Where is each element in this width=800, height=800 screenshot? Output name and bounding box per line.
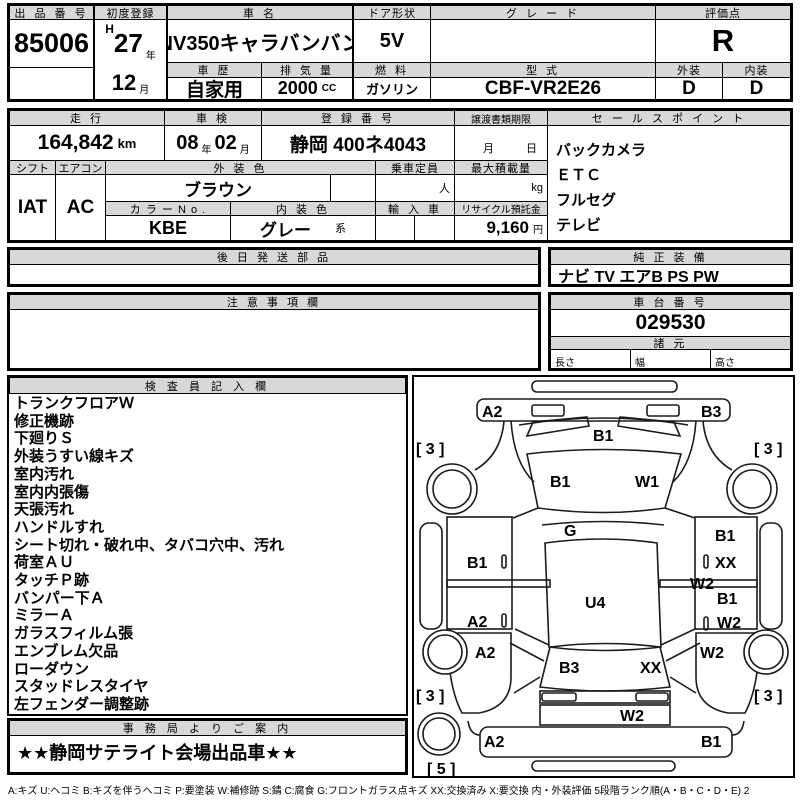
inspector-item: エンブレム欠品 xyxy=(14,643,406,661)
first-reg-year: H 27 年 xyxy=(95,20,166,66)
left-door-divider xyxy=(447,580,550,587)
later-parts-header: 後 日 発 送 部 品 xyxy=(9,249,539,265)
int-color-value: グレー 系 xyxy=(230,215,376,241)
import-value-2 xyxy=(414,215,455,241)
auction-no-value: 85006 xyxy=(9,19,94,68)
sales-points-header: セ ー ル ス ポ イ ン ト xyxy=(547,110,791,126)
shift-value: IAT xyxy=(9,174,56,241)
handle-right-rear xyxy=(704,617,708,630)
oem-header: 純 正 装 備 xyxy=(550,249,791,265)
later-parts-value xyxy=(9,264,539,285)
sales-point-item: テレビ xyxy=(556,213,790,238)
office-block: 事 務 局 よ り ご 案 内 ★★静岡サテライト会場出品車★★ xyxy=(7,718,408,775)
handle-left-rear xyxy=(502,614,506,627)
sales-points-list: バックカメラ ＥＴＣ フルセグ テレビ xyxy=(547,125,791,241)
recycle-unit: 円 xyxy=(533,221,543,236)
footer-legend: A:キズ U:ヘコミ B:キズを伴うヘコミ P:要塗装 W:補修跡 S:錆 C:… xyxy=(8,782,796,798)
left-door-panel xyxy=(447,517,512,629)
inspector-item: 修正機跡 xyxy=(14,413,406,431)
marker-left-rear-door: A2 xyxy=(467,614,488,631)
handle-right-front xyxy=(704,555,708,568)
pillar-right-1 xyxy=(661,629,695,645)
hood-seam-left xyxy=(527,417,589,436)
first-reg-header: 初度登録 xyxy=(94,5,167,20)
marker-roof: U4 xyxy=(585,595,606,612)
quarter-hatch-left xyxy=(514,677,540,693)
marker-windshield-right: W1 xyxy=(635,474,659,491)
condition-block: 走 行 164,842 km 車 検 08 年 02 月 登 録 番 号 静岡 … xyxy=(7,108,793,243)
marker-rear-bumper-right: B1 xyxy=(701,734,722,751)
oem-block: 純 正 装 備 ナビ TV エアB PS PW xyxy=(548,247,793,287)
marker-front-bumper-left: A2 xyxy=(482,404,503,421)
inspector-item: 左フェンダー調整跡 xyxy=(14,696,406,714)
pillar-left-2 xyxy=(510,643,544,661)
quarter-hatch-right xyxy=(670,677,696,693)
year-unit: 年 xyxy=(146,47,156,62)
marker-tire-front-right: [ 3 ] xyxy=(754,441,782,458)
import-header: 輸 入 車 xyxy=(375,201,455,216)
color-no-value: KBE xyxy=(105,215,231,241)
door-header: ドア形状 xyxy=(353,5,431,20)
handle-left-front xyxy=(502,555,506,568)
sales-point-item: ＥＴＣ xyxy=(556,163,790,188)
door-value: 5V xyxy=(353,19,431,63)
score-header: 評価点 xyxy=(655,5,791,20)
spec-width-cell: 幅 xyxy=(630,349,711,369)
oem-value: ナビ TV エアB PS PW xyxy=(550,264,791,285)
ext-color-header: 外 装 色 xyxy=(105,160,376,175)
capacity-value: 人 xyxy=(375,174,455,202)
a-pillar-left xyxy=(513,508,538,518)
capacity-header: 乗車定員 xyxy=(375,160,455,175)
inspector-list: トランクフロアＷ 修正機跡 下廻りＳ 外装うすい線キズ 室内汚れ 室内内張傷 天… xyxy=(9,393,406,714)
marker-right-front-door-1: B1 xyxy=(715,528,736,545)
inspector-item: ローダウン xyxy=(14,661,406,679)
recycle-value: 9,160 円 xyxy=(454,215,548,241)
marker-right-rear-door-2: W2 xyxy=(717,615,741,632)
aircon-header: エアコン xyxy=(55,160,106,175)
grade-header: グ レ ー ド xyxy=(430,5,656,20)
ext-grade-value: D xyxy=(655,77,723,100)
inspector-item: ガラスフィルム張 xyxy=(14,625,406,643)
fuel-header: 燃 料 xyxy=(353,62,431,78)
int-color-suffix: 系 xyxy=(335,220,346,236)
bumper-detail-left xyxy=(532,405,564,416)
int-grade-header: 内装 xyxy=(722,62,791,78)
marker-front-bumper-right: B3 xyxy=(701,404,722,421)
auction-no-header: 出 品 番 号 xyxy=(9,5,94,20)
sales-point-item: フルセグ xyxy=(556,188,790,213)
inspector-item: ハンドルすれ xyxy=(14,519,406,537)
wheel-rear-left-inner xyxy=(428,635,462,669)
marker-left-front-door: B1 xyxy=(467,555,488,572)
int-color-name: グレー xyxy=(260,216,311,241)
mileage-value: 164,842 km xyxy=(9,125,165,161)
shaken-header: 車 検 xyxy=(164,110,262,126)
inspector-item: 室内内張傷 xyxy=(14,484,406,502)
spare-tire-inner xyxy=(423,718,455,750)
inspector-header: 検 査 員 記 入 欄 xyxy=(9,377,406,394)
marker-rear-window-left: B3 xyxy=(559,660,580,677)
aircon-value: AC xyxy=(55,174,106,241)
marker-right-mid: W2 xyxy=(690,576,714,593)
inspector-item: 外装うすい線キズ xyxy=(14,448,406,466)
right-rail xyxy=(760,523,782,629)
car-name-value: NV350キャラバンバン xyxy=(167,19,353,63)
int-color-header: 内 装 色 xyxy=(230,201,376,216)
color-no-header: カ ラ ー N o . xyxy=(105,201,231,216)
marker-hood: B1 xyxy=(593,428,614,445)
inspector-item: 下廻りＳ xyxy=(14,430,406,448)
wheel-front-right-inner xyxy=(733,470,771,508)
hood-seam-right xyxy=(618,417,680,436)
displacement-header: 排 気 量 xyxy=(261,62,353,78)
shaken-year-unit: 年 xyxy=(202,141,212,156)
ext-grade-header: 外装 xyxy=(655,62,723,78)
grade-value xyxy=(430,19,656,63)
inspector-item: トランクフロアＷ xyxy=(14,395,406,413)
ext-color-suffix-cell xyxy=(330,174,376,202)
km-value: 164,842 xyxy=(38,131,114,155)
cowl-line xyxy=(542,522,664,526)
fuel-value: ガソリン xyxy=(353,77,431,100)
sales-point-item: バックカメラ xyxy=(556,138,790,163)
marker-tire-rear-left: [ 3 ] xyxy=(416,688,444,705)
wheel-rear-right-inner xyxy=(749,635,783,669)
rear-bumper xyxy=(480,727,732,757)
import-value xyxy=(375,215,415,241)
rear-lip xyxy=(532,761,675,771)
int-grade-value: D xyxy=(722,77,791,100)
recycle-header: リサイクル預託金 xyxy=(454,201,548,216)
front-fender-right xyxy=(703,421,732,470)
spec-height-cell: 高さ xyxy=(710,349,791,369)
shaken-year: 08 xyxy=(176,132,198,155)
marker-right-front-door-2: XX xyxy=(715,555,737,572)
pillar-right-2 xyxy=(666,643,700,661)
notes-value xyxy=(9,309,539,369)
notes-header: 注 意 事 項 欄 xyxy=(9,294,539,310)
marker-tire-front-left: [ 3 ] xyxy=(416,441,444,458)
inspector-block: 検 査 員 記 入 欄 トランクフロアＷ 修正機跡 下廻りＳ 外装うすい線キズ … xyxy=(7,375,408,716)
history-header: 車 歴 xyxy=(167,62,262,78)
cc-value: 2000 xyxy=(278,78,318,99)
auction-sheet: { "sheet": { "auction_no": {"label":"出 品… xyxy=(0,0,800,800)
inspector-item: 天張汚れ xyxy=(14,501,406,519)
rear-panel xyxy=(540,705,670,725)
tail-light-left xyxy=(542,693,576,701)
marker-right-quarter: W2 xyxy=(700,645,724,662)
inspector-item: 荷室ＡＵ xyxy=(14,554,406,572)
later-parts-block: 後 日 発 送 部 品 xyxy=(7,247,541,287)
displacement-value: 2000 CC xyxy=(261,77,353,100)
km-unit: km xyxy=(118,136,137,151)
shaken-value: 08 年 02 月 xyxy=(164,125,262,161)
identity-block: 出 品 番 号 85006 初度登録 H 27 年 12 月 車 名 NV350… xyxy=(7,3,793,102)
model-code-value: CBF-VR2E26 xyxy=(430,77,656,100)
inspector-item: バンパー下Ａ xyxy=(14,590,406,608)
front-fender-right-inner xyxy=(673,421,696,482)
month: 12 xyxy=(112,70,136,96)
inspector-item: ミラーＡ xyxy=(14,607,406,625)
a-pillar-right xyxy=(665,508,695,518)
wheel-front-left-inner xyxy=(433,470,471,508)
auction-no-empty xyxy=(9,67,94,100)
pillar-left-1 xyxy=(515,629,549,645)
rear-corner-left xyxy=(468,721,480,735)
front-fender-left xyxy=(475,421,504,470)
shaken-month: 02 xyxy=(215,132,237,155)
office-value: ★★静岡サテライト会場出品車★★ xyxy=(9,735,406,773)
tail-light-right xyxy=(636,693,668,701)
chassis-value: 029530 xyxy=(550,309,791,337)
history-value: 自家用 xyxy=(167,77,262,100)
mileage-header: 走 行 xyxy=(9,110,165,126)
office-header: 事 務 局 よ り ご 案 内 xyxy=(9,720,406,736)
chassis-block: 車 台 番 号 029530 諸 元 長さ 幅 高さ xyxy=(548,292,793,371)
car-top-view: A2 B3 B1 [ 3 ] [ 3 ] B1 W1 G B1 B1 XX W2… xyxy=(414,377,793,776)
marker-rear-window-right: XX xyxy=(640,660,662,677)
shift-header: シフト xyxy=(9,160,56,175)
marker-rear-panel: W2 xyxy=(620,708,644,725)
marker-spare-tire: [ 5 ] xyxy=(427,761,455,776)
cc-unit: CC xyxy=(322,83,336,94)
bumper-detail-right xyxy=(647,405,679,416)
reg-no-header: 登 録 番 号 xyxy=(261,110,455,126)
spec-length-label: 長さ xyxy=(555,354,575,369)
marker-tire-rear-right: [ 3 ] xyxy=(754,688,782,705)
inspector-item: 室内汚れ xyxy=(14,466,406,484)
first-reg-value: H 27 年 12 月 xyxy=(94,19,167,100)
inspector-item: シート切れ・破れ中、タバコ穴中、汚れ xyxy=(14,537,406,555)
first-reg-month: 12 月 xyxy=(95,66,166,100)
year: 27 xyxy=(114,28,143,59)
notes-block: 注 意 事 項 欄 xyxy=(7,292,541,371)
inspector-item: タッチＰ跡 xyxy=(14,572,406,590)
max-load-header: 最大積載量 xyxy=(454,160,548,175)
marker-rear-bumper-left: A2 xyxy=(484,734,505,751)
spec-height-label: 高さ xyxy=(715,354,735,369)
spec-width-label: 幅 xyxy=(635,354,645,369)
marker-cowl: G xyxy=(564,523,576,540)
rear-corner-right xyxy=(732,721,744,735)
ext-color-value: ブラウン xyxy=(105,174,331,202)
score-value: R xyxy=(655,19,791,63)
era: H xyxy=(105,22,114,36)
transfer-day-unit: 日 xyxy=(526,140,537,156)
specs-header: 諸 元 xyxy=(550,336,791,350)
month-unit: 月 xyxy=(139,81,149,96)
left-rail xyxy=(420,523,442,629)
chassis-header: 車 台 番 号 xyxy=(550,294,791,310)
spec-length-cell: 長さ xyxy=(550,349,631,369)
max-load-value: kg xyxy=(454,174,548,202)
transfer-header: 譲渡書類期限 xyxy=(454,110,548,126)
marker-left-quarter: A2 xyxy=(475,645,496,662)
car-name-header: 車 名 xyxy=(167,5,353,20)
marker-windshield-left: B1 xyxy=(550,474,571,491)
inspector-item: スタッドレスタイヤ xyxy=(14,678,406,696)
front-lip xyxy=(532,381,677,392)
transfer-value: 月 日 xyxy=(454,125,548,161)
recycle-amount: 9,160 xyxy=(486,218,529,238)
damage-diagram: A2 B3 B1 [ 3 ] [ 3 ] B1 W1 G B1 B1 XX W2… xyxy=(412,375,795,778)
transfer-month-unit: 月 xyxy=(483,140,494,156)
reg-no-value: 静岡 400ネ4043 xyxy=(261,125,455,161)
marker-right-rear-door-1: B1 xyxy=(717,591,738,608)
model-code-header: 型 式 xyxy=(430,62,656,78)
shaken-month-unit: 月 xyxy=(240,141,250,156)
